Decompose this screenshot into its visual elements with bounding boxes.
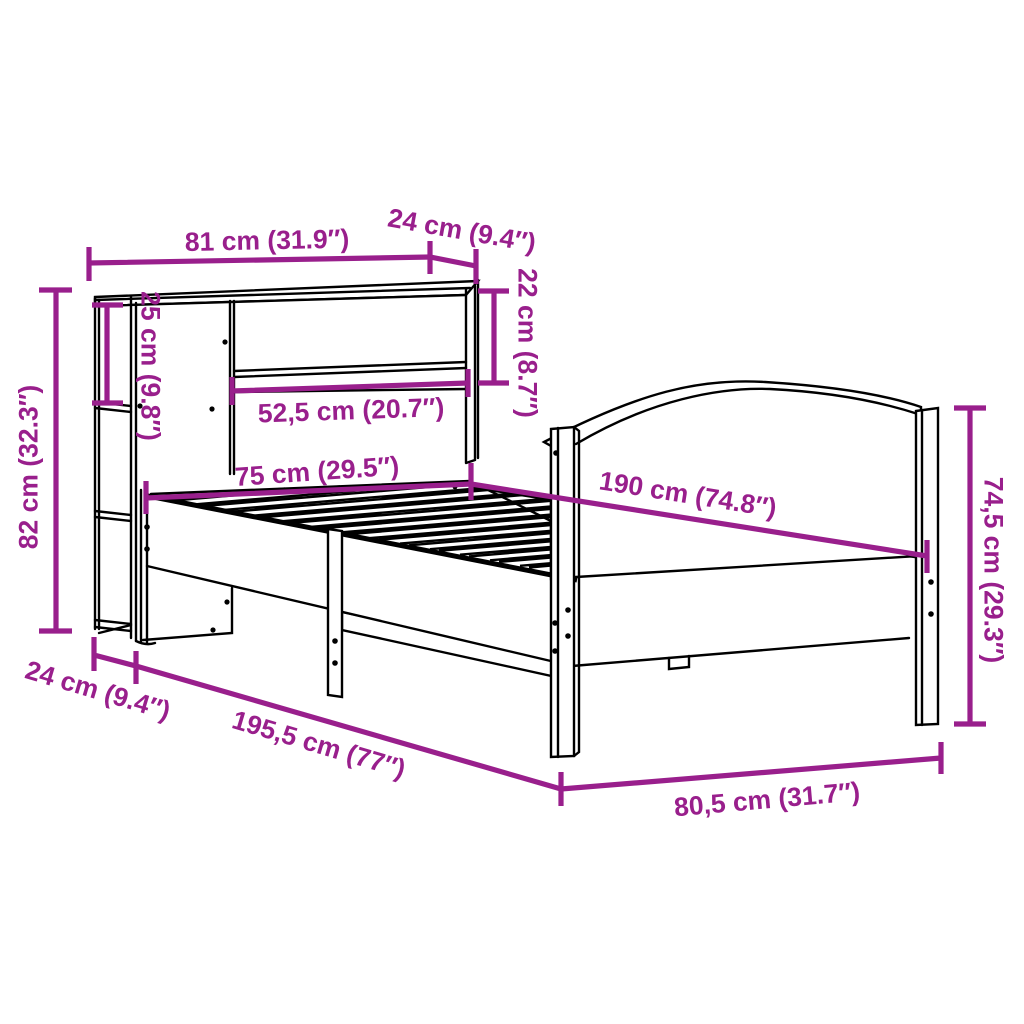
svg-text:74,5 cm (29.3″): 74,5 cm (29.3″) [979,477,1009,664]
svg-text:22 cm (8.7″): 22 cm (8.7″) [513,268,543,418]
svg-text:81 cm (31.9″): 81 cm (31.9″) [184,224,349,257]
svg-text:25 cm (9.8″): 25 cm (9.8″) [136,291,166,441]
svg-text:82 cm (32.3″): 82 cm (32.3″) [13,385,43,549]
